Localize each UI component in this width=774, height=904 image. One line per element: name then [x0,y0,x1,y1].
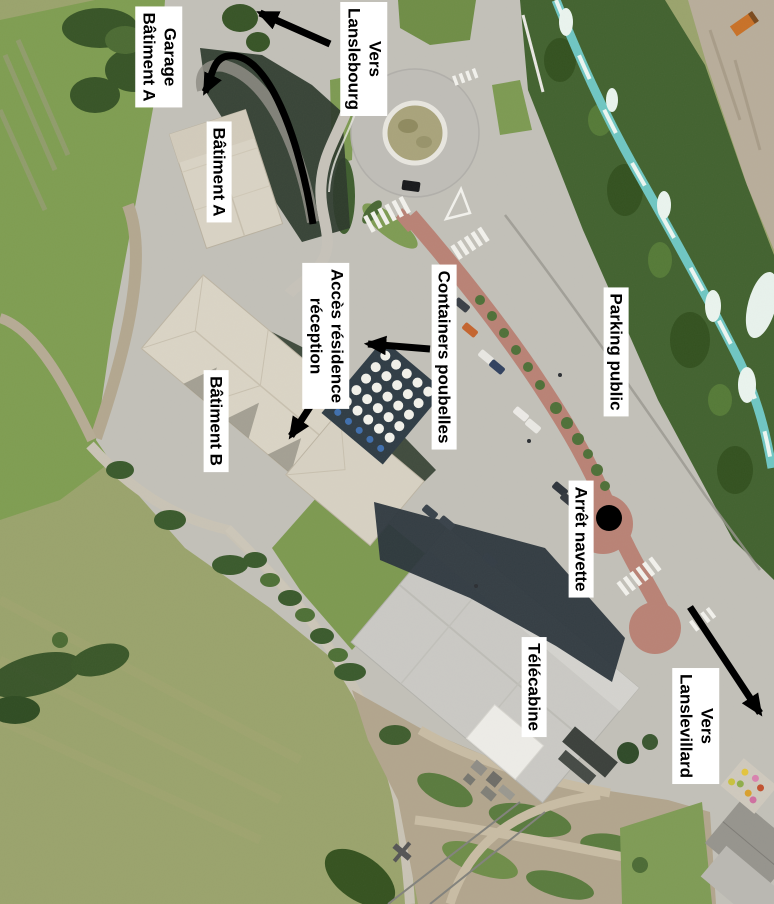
label-telecabine: Télécabine [521,637,546,737]
shuttle-stop-marker [596,505,622,531]
arrow-containers-poubelles [368,344,430,349]
label-vers-lanslebourg: Vers Lanslebourg [341,2,388,116]
label-garage-batiment-a: Garage Bâtiment A [136,6,183,107]
annotated-aerial-map: Garage Bâtiment A Vers Lanslebourg Bâtim… [0,0,774,904]
label-parking-public: Parking public [603,287,628,416]
label-arret-navette: Arrêt navette [568,481,593,598]
label-batiment-b: Bâtiment B [203,370,228,472]
label-containers-poubelles: Containers poubelles [431,265,456,450]
photo-grain [0,0,774,904]
satellite-photo [0,0,774,904]
label-vers-lanslevillard: Vers Lanslevillard [673,668,720,784]
label-acces-residence: Accès résidence réception [303,263,350,409]
label-batiment-a: Bâtiment A [206,121,231,222]
